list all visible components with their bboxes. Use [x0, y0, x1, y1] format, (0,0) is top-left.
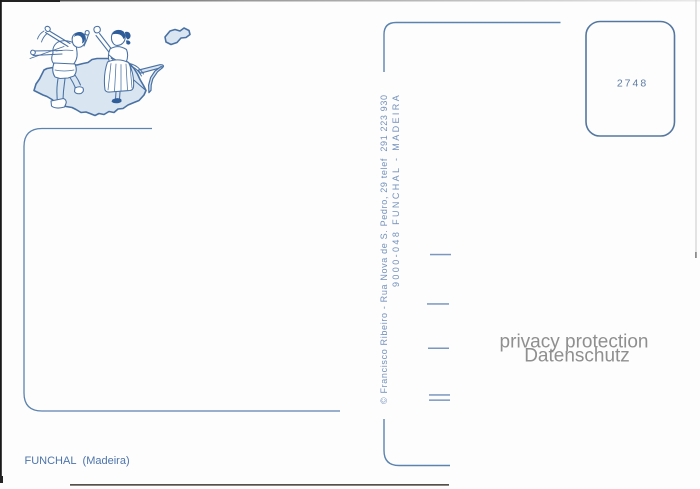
svg-text:© Francisco Ribeiro - Rua Nova: © Francisco Ribeiro - Rua Nova de S. Ped…: [379, 94, 389, 404]
svg-text:2748: 2748: [617, 78, 648, 90]
svg-text:Datenschutz: Datenschutz: [524, 346, 630, 367]
svg-text:9000-048 FUNCHAL - MADEIRA: 9000-048 FUNCHAL - MADEIRA: [391, 93, 401, 287]
svg-text:FUNCHAL (Madeira): FUNCHAL (Madeira): [25, 455, 130, 467]
